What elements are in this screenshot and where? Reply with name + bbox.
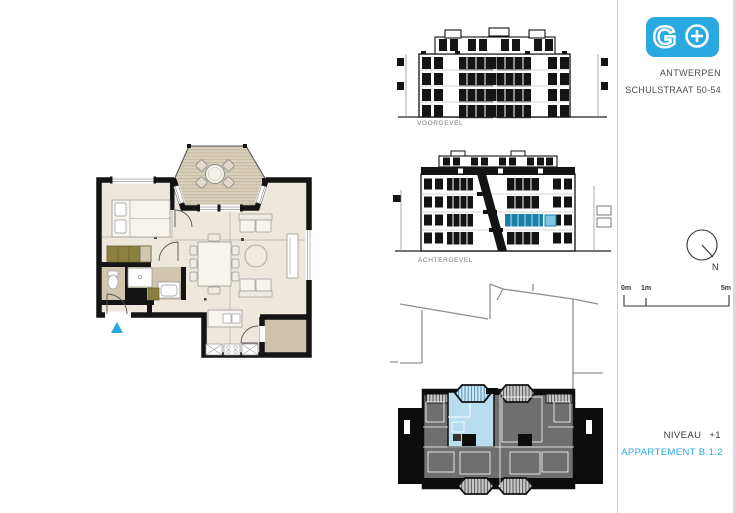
coffee-table — [245, 245, 267, 267]
building-footprint — [398, 389, 603, 488]
front-elevation-label: VOORGEVEL — [417, 120, 463, 127]
tv-bench — [287, 234, 298, 278]
rear-elevation-label: ACHTERGEVEL — [418, 257, 473, 264]
scale-tick-1: 1m — [641, 285, 651, 292]
title-panel: G ANTWERPEN SCHULSTRAAT 50-54 N 0m 1m 5m — [617, 0, 736, 513]
corner-terrace — [262, 317, 309, 355]
wardrobe — [107, 246, 151, 262]
logo-mark: G — [650, 20, 716, 54]
front-elevation-drawing — [395, 24, 610, 120]
project-address: SCHULSTRAAT 50-54 — [625, 85, 721, 95]
plus-circle-icon — [686, 26, 707, 47]
shower — [128, 268, 152, 287]
apartment-indicator: APPARTEMENT B.1.2 — [621, 447, 723, 458]
scale-tick-5: 5m — [721, 285, 731, 292]
entrance-arrow — [111, 322, 123, 333]
north-arrow-compass: N — [685, 228, 725, 274]
bed — [112, 200, 170, 237]
parcel-boundary — [390, 284, 603, 390]
north-label: N — [712, 262, 719, 272]
logo-letter: G — [653, 21, 676, 54]
apartment-floor-plan-drawing — [94, 130, 316, 365]
bath-cabinet — [148, 288, 159, 300]
scale-bar: 0m 1m 5m — [621, 282, 736, 310]
scale-tick-0: 0m — [621, 285, 631, 292]
toilet — [108, 271, 118, 289]
kitchen-island — [208, 310, 242, 327]
kitchen-appliances — [206, 344, 258, 355]
level-label: NIVEAU — [664, 430, 702, 441]
project-city: ANTWERPEN — [660, 68, 721, 78]
level-value: +1 — [709, 430, 721, 441]
rear-elevation-drawing — [393, 148, 615, 254]
level-indicator: NIVEAU+1 — [664, 430, 721, 441]
washbasin — [158, 282, 180, 298]
site-key-plan-drawing — [390, 282, 615, 510]
drawing-sheet: VOORGEVEL ACHTERGEVEL — [0, 0, 736, 513]
logo: G — [646, 17, 719, 57]
